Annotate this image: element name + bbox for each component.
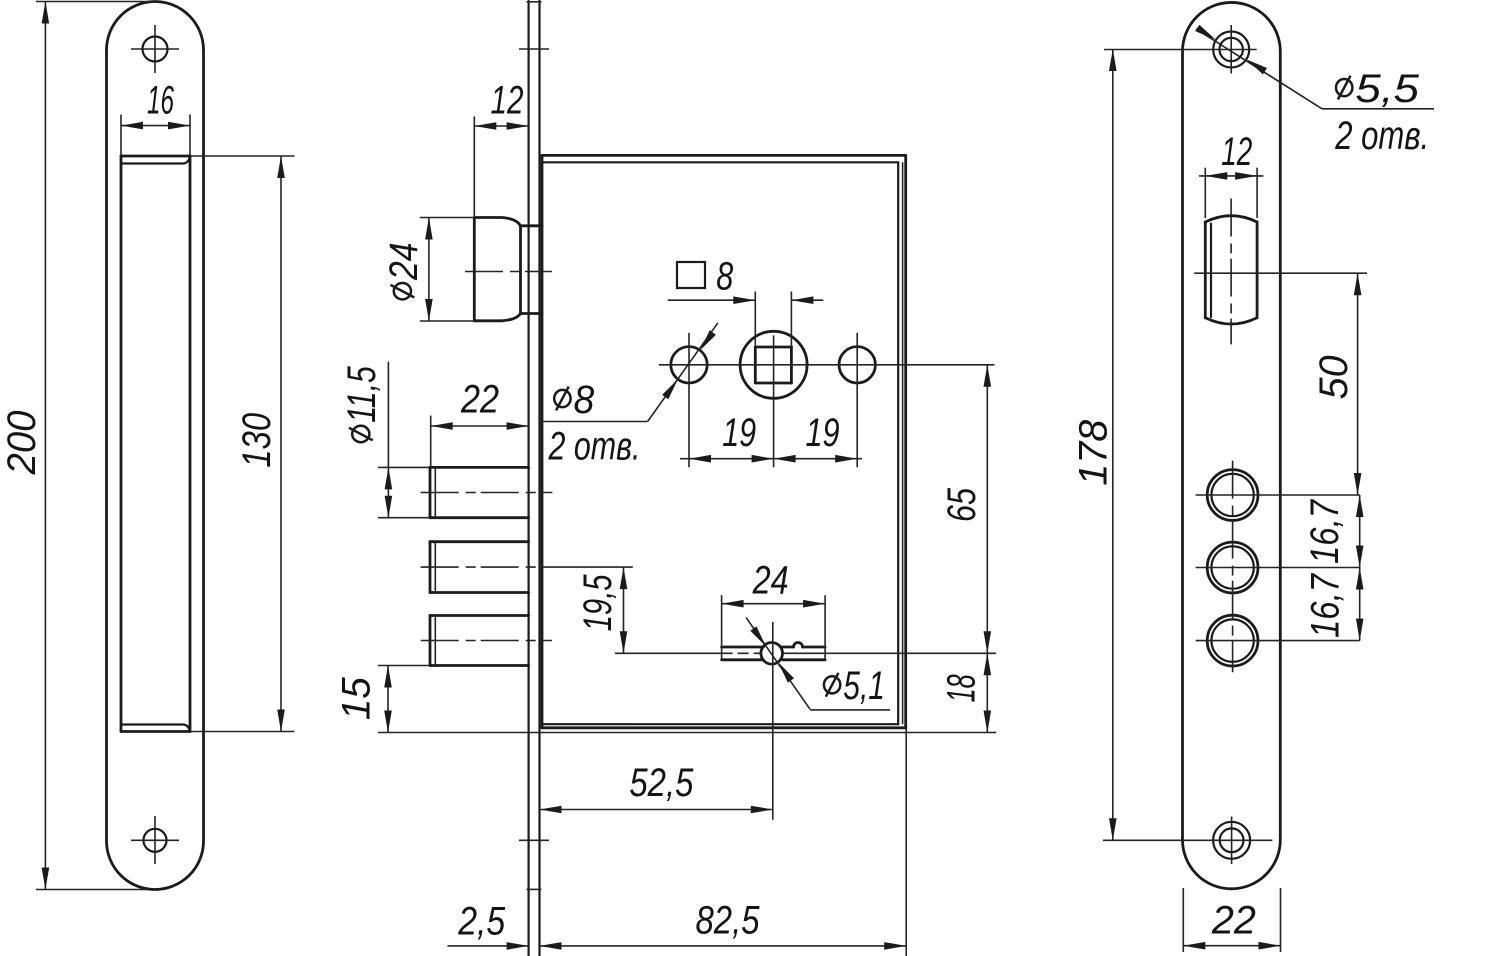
svg-text:11,5: 11,5 xyxy=(340,366,384,423)
svg-text:178: 178 xyxy=(1071,419,1115,486)
svg-text:5,1: 5,1 xyxy=(843,664,885,708)
svg-text:8: 8 xyxy=(716,254,734,298)
svg-text:5,5: 5,5 xyxy=(1355,67,1419,111)
svg-text:19,5: 19,5 xyxy=(576,574,620,632)
svg-text:52,5: 52,5 xyxy=(629,761,694,805)
svg-text:16,7: 16,7 xyxy=(1303,573,1347,638)
svg-text:200: 200 xyxy=(0,411,44,476)
svg-text:22: 22 xyxy=(1211,899,1256,943)
svg-text:24: 24 xyxy=(752,559,789,603)
svg-text:82,5: 82,5 xyxy=(696,898,761,942)
svg-text:16,7: 16,7 xyxy=(1303,499,1347,564)
svg-text:19: 19 xyxy=(806,411,840,455)
svg-text:8: 8 xyxy=(574,378,595,422)
svg-text:65: 65 xyxy=(940,487,984,522)
svg-text:2 отв.: 2 отв. xyxy=(548,424,641,468)
svg-text:15: 15 xyxy=(334,676,378,720)
svg-text:50: 50 xyxy=(1312,355,1356,399)
svg-text:12: 12 xyxy=(491,78,524,122)
svg-text:2 отв.: 2 отв. xyxy=(1334,114,1429,158)
svg-text:16: 16 xyxy=(147,78,174,122)
svg-text:130: 130 xyxy=(235,413,279,468)
svg-text:24: 24 xyxy=(382,242,426,280)
svg-text:2,5: 2,5 xyxy=(457,899,505,943)
svg-text:12: 12 xyxy=(1221,130,1252,174)
svg-text:18: 18 xyxy=(940,674,984,702)
svg-text:22: 22 xyxy=(460,377,499,421)
svg-text:19: 19 xyxy=(722,411,756,455)
